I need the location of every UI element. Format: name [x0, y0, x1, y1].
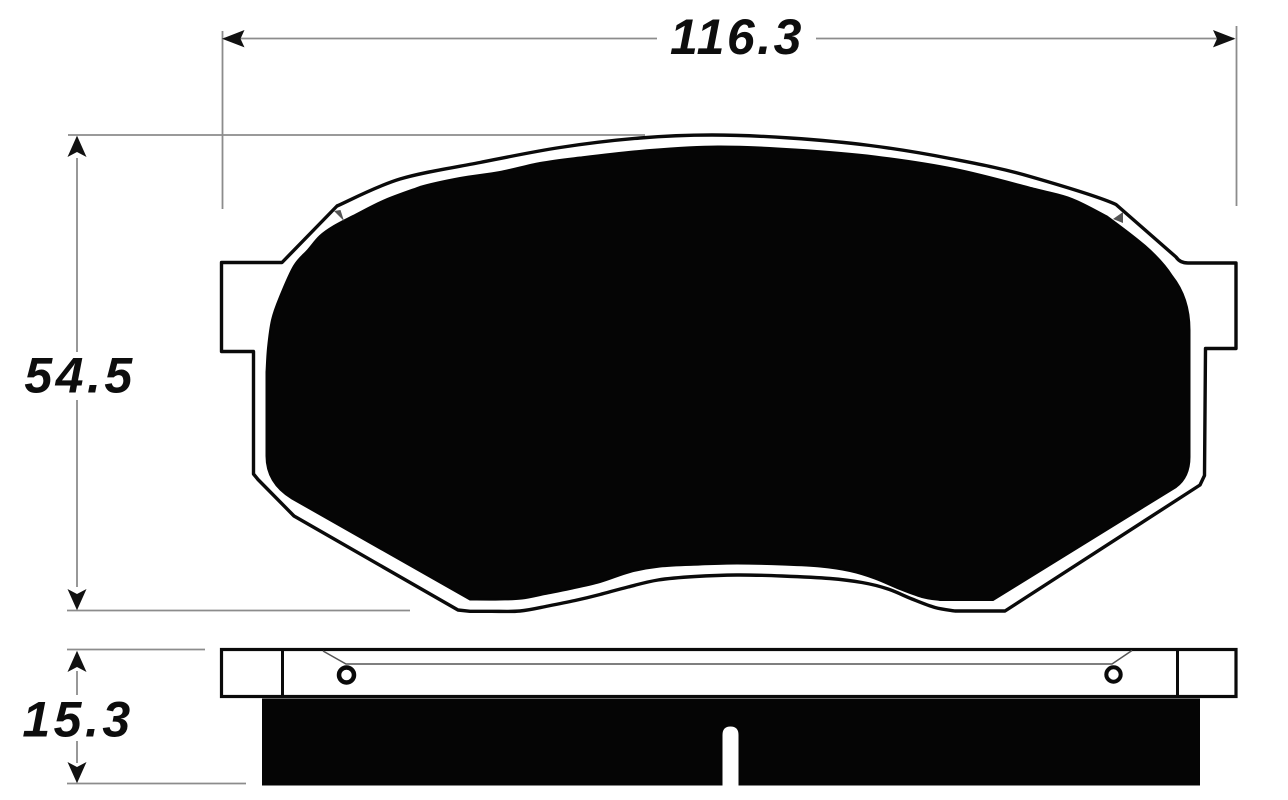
svg-text:15.3: 15.3 — [22, 692, 133, 748]
svg-text:54.5: 54.5 — [24, 348, 135, 404]
svg-text:116.3: 116.3 — [670, 9, 804, 65]
